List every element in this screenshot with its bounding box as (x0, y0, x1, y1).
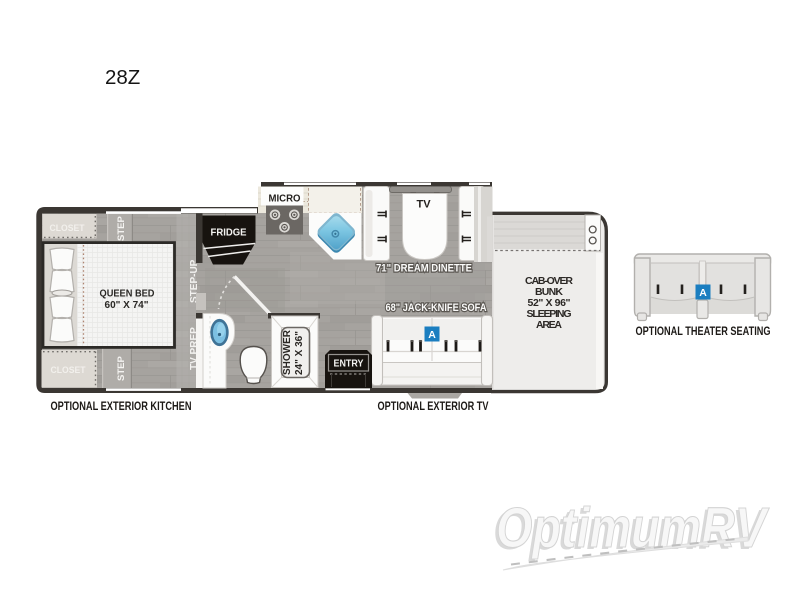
svg-text:STEP: STEP (116, 356, 127, 381)
svg-text:MICRO: MICRO (269, 193, 301, 205)
svg-text:71" DREAM DINETTE: 71" DREAM DINETTE (376, 263, 472, 275)
svg-text:ENTRY: ENTRY (334, 358, 364, 370)
svg-text:QUEEN BED: QUEEN BED (100, 288, 155, 300)
svg-text:A: A (699, 287, 707, 299)
svg-text:24" X 36": 24" X 36" (294, 331, 305, 375)
svg-text:FRIDGE: FRIDGE (211, 228, 247, 239)
svg-text:28Z: 28Z (105, 66, 140, 89)
svg-text:68" JACK-KNIFE SOFA: 68" JACK-KNIFE SOFA (386, 302, 487, 314)
svg-text:SHOWER: SHOWER (282, 329, 293, 375)
svg-text:STEP: STEP (116, 216, 127, 241)
svg-text:TV: TV (416, 199, 431, 211)
svg-text:A: A (428, 329, 436, 341)
svg-text:AREA: AREA (536, 319, 562, 331)
svg-text:CLOSET: CLOSET (50, 223, 85, 234)
svg-text:OPTIONAL THEATER SEATING: OPTIONAL THEATER SEATING (636, 324, 771, 338)
svg-text:OPTIONAL EXTERIOR KITCHEN: OPTIONAL EXTERIOR KITCHEN (51, 399, 192, 413)
svg-text:CLOSET: CLOSET (51, 365, 86, 376)
svg-text:OPTIONAL EXTERIOR TV: OPTIONAL EXTERIOR TV (378, 399, 489, 413)
svg-text:60" X 74": 60" X 74" (105, 299, 149, 311)
